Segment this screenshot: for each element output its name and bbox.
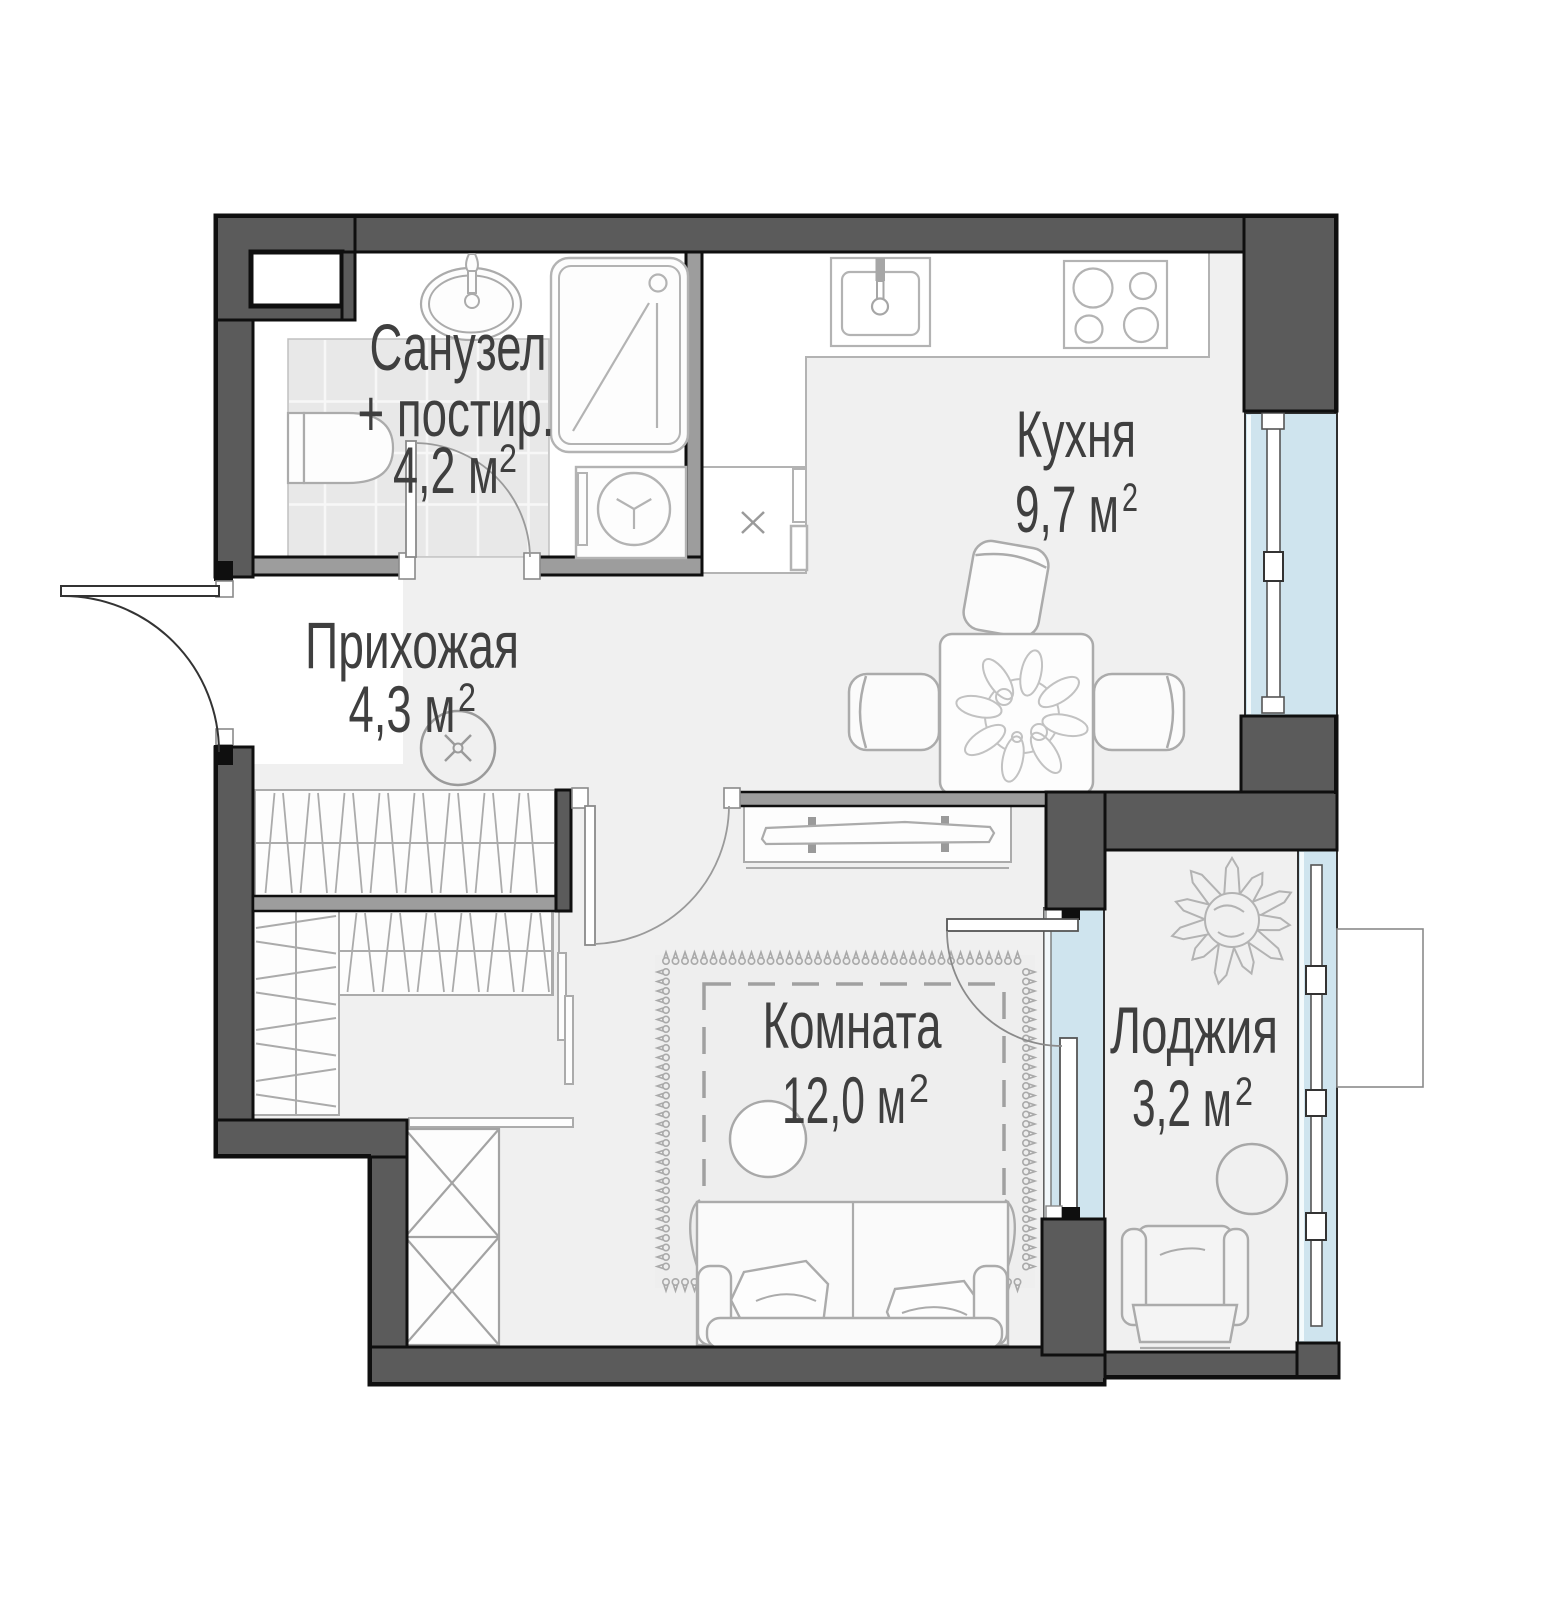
svg-text:Кухня: Кухня — [1016, 397, 1136, 471]
svg-text:2: 2 — [458, 676, 476, 720]
svg-text:2: 2 — [499, 437, 517, 481]
svg-text:9,7 м: 9,7 м — [1015, 472, 1119, 546]
svg-text:Санузел: Санузел — [370, 310, 547, 384]
svg-text:3,2 м: 3,2 м — [1132, 1066, 1232, 1140]
svg-text:Лоджия: Лоджия — [1110, 993, 1278, 1067]
svg-text:2: 2 — [1235, 1070, 1253, 1114]
svg-text:2: 2 — [1122, 476, 1138, 520]
svg-text:4,3 м: 4,3 м — [349, 672, 456, 746]
svg-text:12,0 м: 12,0 м — [782, 1063, 906, 1137]
svg-text:4,2 м: 4,2 м — [393, 433, 499, 507]
svg-text:Комната: Комната — [763, 988, 942, 1062]
svg-text:2: 2 — [909, 1067, 929, 1111]
svg-text:Прихожая: Прихожая — [305, 608, 519, 682]
